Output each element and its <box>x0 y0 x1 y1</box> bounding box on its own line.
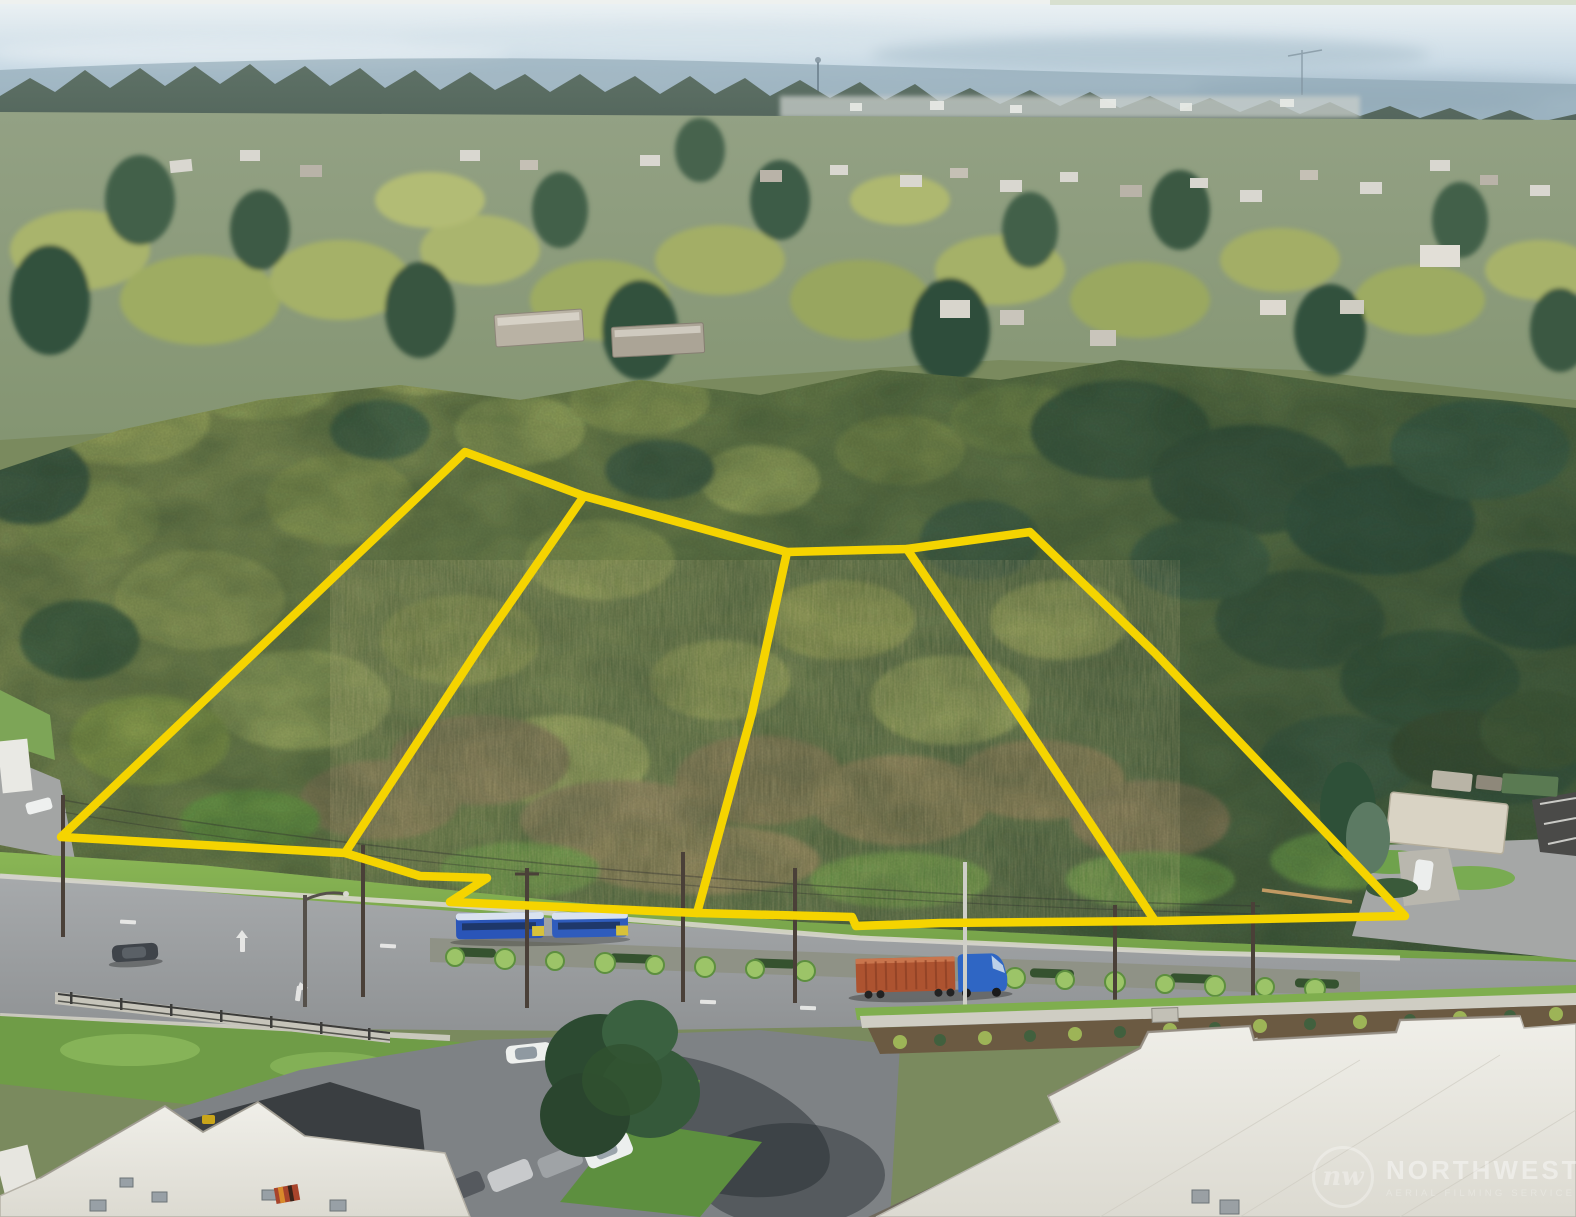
left-white-building <box>0 739 33 794</box>
semi-truck <box>848 953 1013 1004</box>
bottom-right-building <box>855 985 1576 1217</box>
scene <box>0 0 1576 1217</box>
transit-buses <box>450 910 631 947</box>
green-carport <box>1501 773 1558 797</box>
distant-city <box>780 96 1360 118</box>
stairs <box>1152 1008 1178 1023</box>
aerial-photo: nw NORTHWEST AERIAL FILMING SERVICE <box>0 0 1576 1217</box>
forest-hillside <box>0 309 1576 965</box>
